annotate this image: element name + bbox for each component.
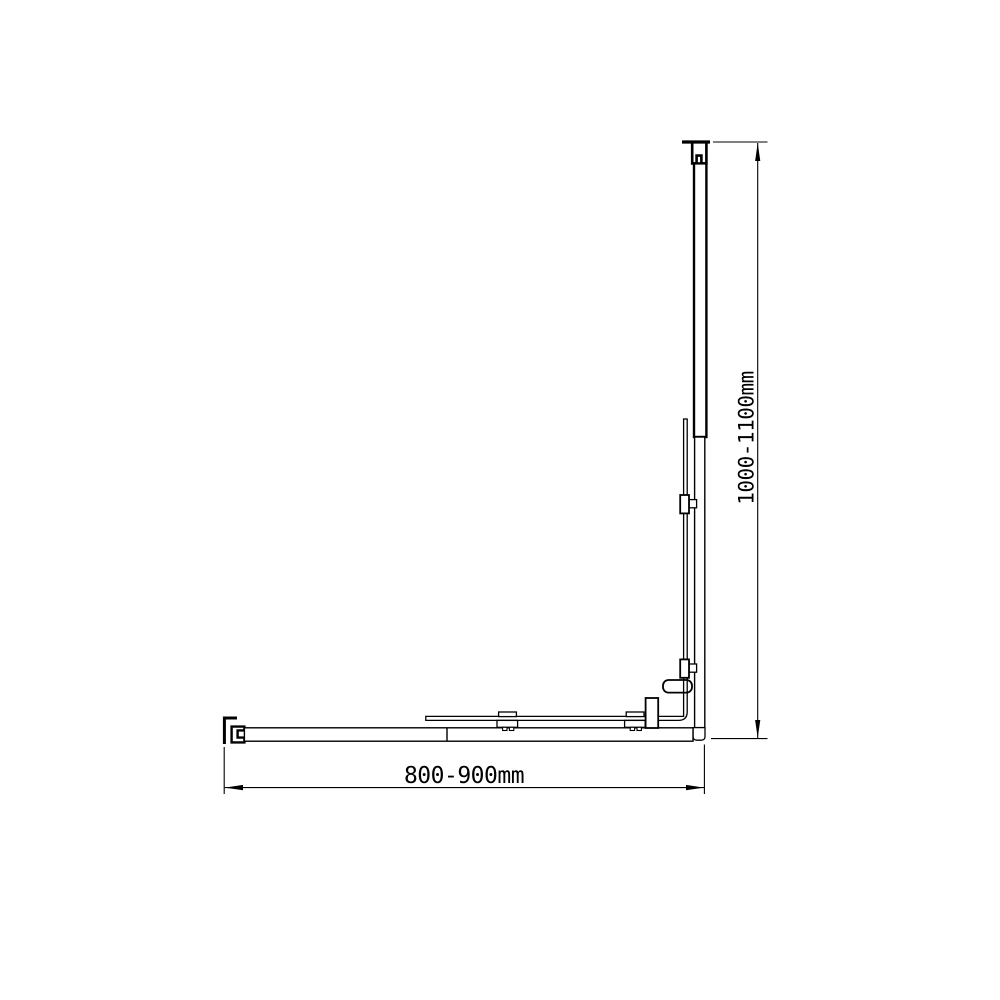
clamp-leg [630, 727, 634, 730]
height-dimension-label: 1000-1100mm [737, 371, 758, 505]
arrow-down-icon [755, 720, 760, 738]
side-glass-panel [695, 437, 705, 728]
side-panel-assembly [426, 142, 710, 740]
top-wall-bracket-profile [692, 143, 706, 163]
clamp-tab [689, 500, 697, 508]
clamp-body [497, 720, 518, 727]
clamp-leg [509, 727, 513, 730]
shower-screen-plan-drawing [0, 0, 1000, 1000]
fixed-panel-frame [694, 163, 706, 437]
clamp-plate [626, 712, 644, 717]
clamp-body [625, 720, 646, 727]
glass-clamp-left [497, 712, 518, 731]
clamp-tab [689, 664, 697, 672]
clamp-plate [499, 712, 517, 717]
arrow-up-icon [755, 143, 760, 161]
support-bar [426, 419, 687, 720]
bottom-rail [244, 728, 693, 741]
width-dimension-label: 800-900mm [401, 765, 527, 788]
arrow-left-icon [225, 785, 243, 790]
clamp-body [680, 495, 689, 513]
clamp-leg [637, 727, 641, 730]
left-wall-bracket [232, 727, 245, 743]
arrow-right-icon [686, 785, 704, 790]
corner-end-cap [693, 728, 705, 741]
pivot-block [646, 698, 659, 728]
clamp-body [680, 659, 689, 677]
glass-clamp-right [625, 712, 646, 731]
technical-drawing-canvas: 800-900mm 1000-1100mm [0, 0, 1000, 1000]
clamp-leg [503, 727, 507, 730]
